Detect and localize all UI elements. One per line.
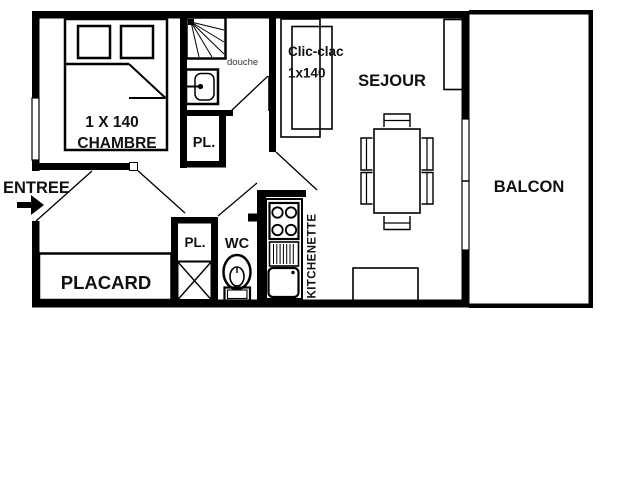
entree-label: ENTREE [3,179,70,197]
closet-upper-label: PL. [193,135,216,151]
balcon-label: BALCON [494,178,565,196]
window [31,98,40,160]
window [461,119,470,250]
floor-plan: 1 X 140 CHAMBRE douche PL. Clic-clac 1x1… [0,0,640,480]
sejour-label: SEJOUR [358,72,426,90]
douche-label: douche [227,57,258,68]
wc-label: WC [225,236,250,252]
chambre-label: CHAMBRE [77,135,156,152]
sofa-label-line1: Clic-clac [288,44,344,59]
floor-plan-page: 1 X 140 CHAMBRE douche PL. Clic-clac 1x1… [0,0,640,480]
placard-label: PLACARD [61,272,151,293]
bed-size-label: 1 X 140 [85,114,138,131]
kitchenette-label: KITCHENETTE [307,214,319,299]
door-stop-notch [130,163,138,171]
closet-lower-label: PL. [184,235,205,250]
sofa-label-line2: 1x140 [288,66,326,81]
